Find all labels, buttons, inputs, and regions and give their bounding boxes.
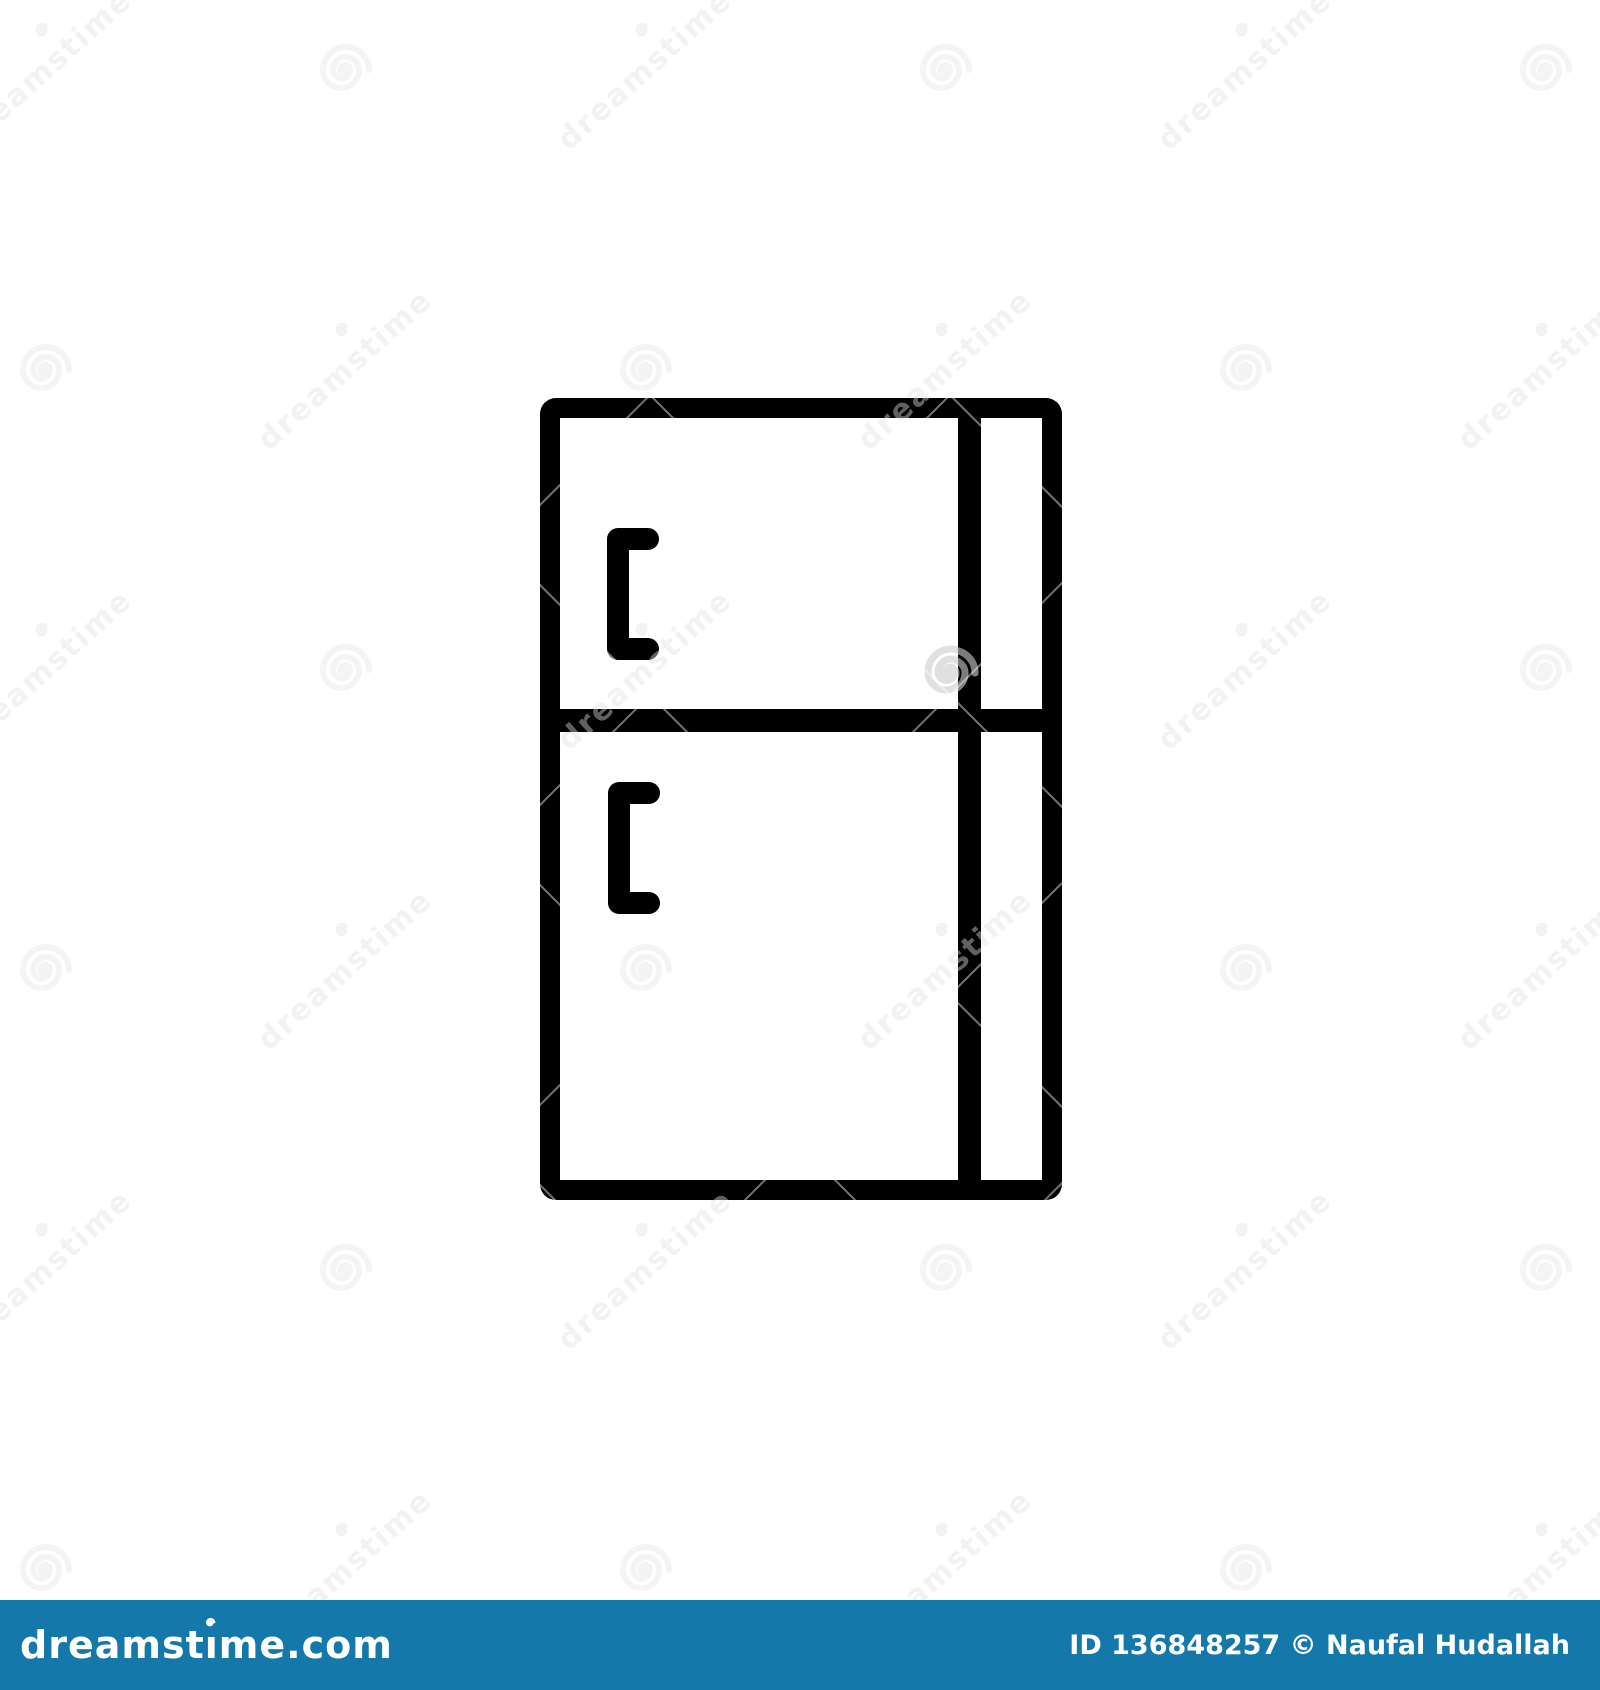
refrigerator-icon bbox=[0, 0, 1600, 1690]
fridge-door-divider-line bbox=[548, 709, 1056, 732]
stock-image-page: dreamstime dreamstime dreamstime dreamst… bbox=[0, 0, 1600, 1690]
logo-spiral-icon bbox=[202, 1614, 219, 1631]
logo-letter-i: ı bbox=[205, 1600, 219, 1690]
logo-text-post: me.com bbox=[219, 1623, 393, 1667]
freezer-door-handle-icon bbox=[607, 528, 659, 660]
fridge-door-handle-icon bbox=[608, 782, 660, 914]
dreamstime-logo: dreamstıme.com bbox=[20, 1600, 393, 1690]
fridge-side-divider-line bbox=[958, 408, 981, 1194]
image-credit: ID 136848257 © Naufal Hudallah bbox=[1069, 1630, 1570, 1661]
logo-text-pre: dreamst bbox=[20, 1623, 205, 1667]
footer-bar: dreamstıme.com ID 136848257 © Naufal Hud… bbox=[0, 1600, 1600, 1690]
